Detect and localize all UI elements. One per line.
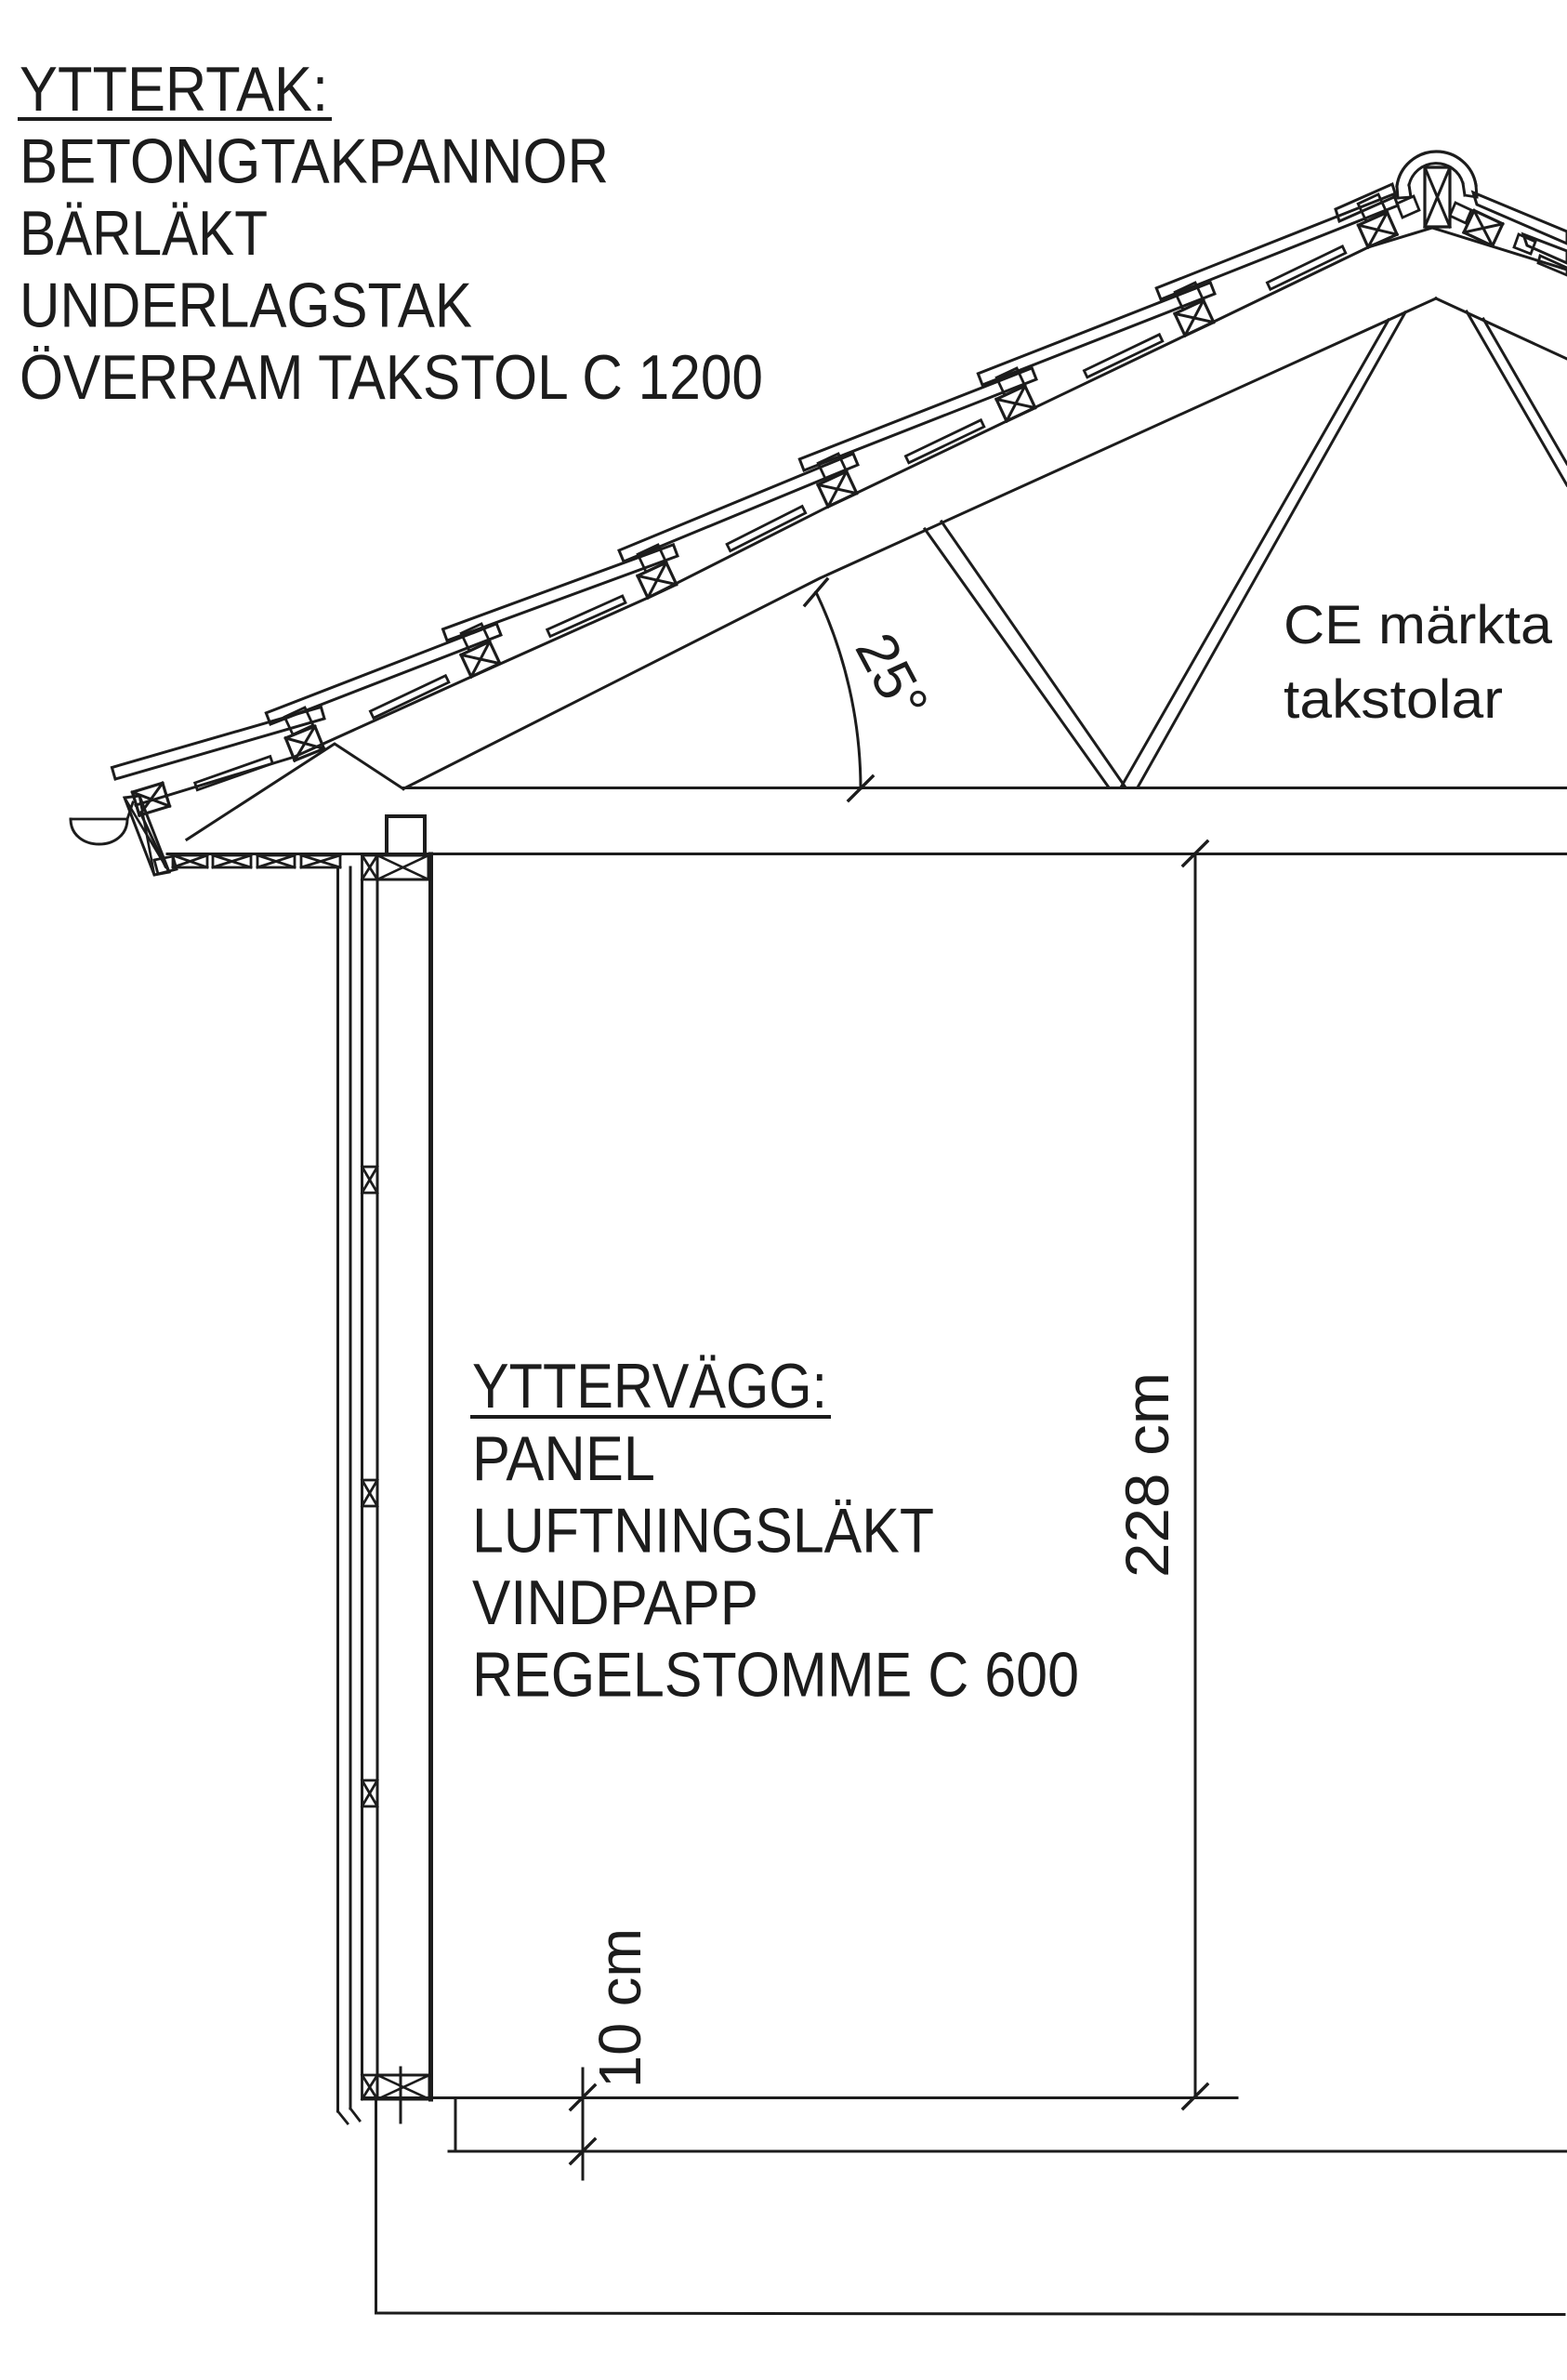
svg-text:ÖVERRAM TAKSTOL C 1200: ÖVERRAM TAKSTOL C 1200: [20, 342, 763, 413]
svg-text:YTTERTAK:: YTTERTAK:: [20, 54, 328, 125]
svg-text:VINDPAPP: VINDPAPP: [472, 1567, 758, 1638]
svg-text:228 cm: 228 cm: [1113, 1372, 1181, 1578]
svg-text:BÄRLÄKT: BÄRLÄKT: [20, 198, 268, 269]
svg-text:BETONGTAKPANNOR: BETONGTAKPANNOR: [20, 126, 609, 197]
svg-text:REGELSTOMME C 600: REGELSTOMME C 600: [472, 1640, 1079, 1711]
svg-text:CE märkta: CE märkta: [1284, 595, 1553, 655]
svg-text:PANEL: PANEL: [472, 1423, 655, 1494]
svg-text:YTTERVÄGG:: YTTERVÄGG:: [472, 1351, 827, 1421]
svg-text:UNDERLAGSTAK: UNDERLAGSTAK: [20, 271, 472, 341]
svg-text:takstolar: takstolar: [1284, 669, 1503, 730]
svg-text:LUFTNINGSLÄKT: LUFTNINGSLÄKT: [472, 1496, 934, 1567]
svg-text:10 cm: 10 cm: [586, 1928, 653, 2088]
